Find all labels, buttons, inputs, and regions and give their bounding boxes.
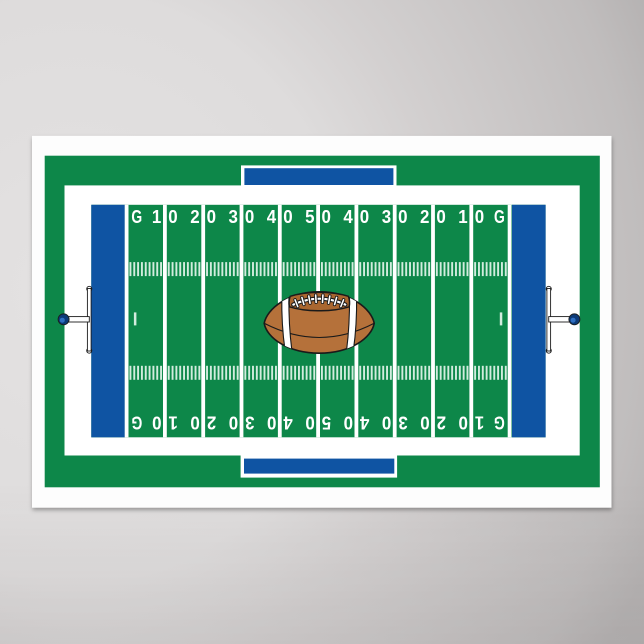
svg-text:G: G [494,206,505,227]
svg-text:4: 4 [343,206,353,227]
svg-text:3: 3 [245,413,254,434]
svg-text:4: 4 [267,206,277,227]
svg-text:2: 2 [207,413,216,434]
svg-text:2: 2 [190,206,199,227]
svg-text:0: 0 [475,206,484,227]
svg-text:0: 0 [344,413,353,434]
svg-text:0: 0 [459,413,468,434]
svg-text:0: 0 [245,206,254,227]
svg-text:G: G [131,206,142,227]
svg-text:0: 0 [322,206,331,227]
svg-text:3: 3 [382,206,391,227]
svg-text:0: 0 [190,413,199,434]
svg-text:0: 0 [360,206,369,227]
svg-text:0: 0 [436,206,445,227]
svg-text:4: 4 [283,413,293,434]
svg-text:1: 1 [458,206,467,227]
svg-text:5: 5 [322,413,331,434]
svg-text:0: 0 [283,206,292,227]
svg-text:3: 3 [229,206,238,227]
svg-text:1: 1 [152,206,161,227]
svg-text:G: G [131,413,142,434]
svg-text:2: 2 [437,413,446,434]
svg-text:0: 0 [267,413,276,434]
svg-text:1: 1 [169,413,178,434]
svg-text:0: 0 [229,413,238,434]
svg-text:0: 0 [207,206,216,227]
svg-text:0: 0 [168,206,177,227]
svg-text:G: G [494,413,505,434]
svg-text:0: 0 [382,413,391,434]
svg-text:0: 0 [305,413,314,434]
svg-text:3: 3 [398,413,407,434]
svg-text:0: 0 [420,413,429,434]
svg-text:5: 5 [305,206,314,227]
svg-text:2: 2 [420,206,429,227]
svg-text:4: 4 [359,413,369,434]
svg-text:1: 1 [475,413,484,434]
svg-text:0: 0 [152,413,161,434]
svg-text:0: 0 [398,206,407,227]
